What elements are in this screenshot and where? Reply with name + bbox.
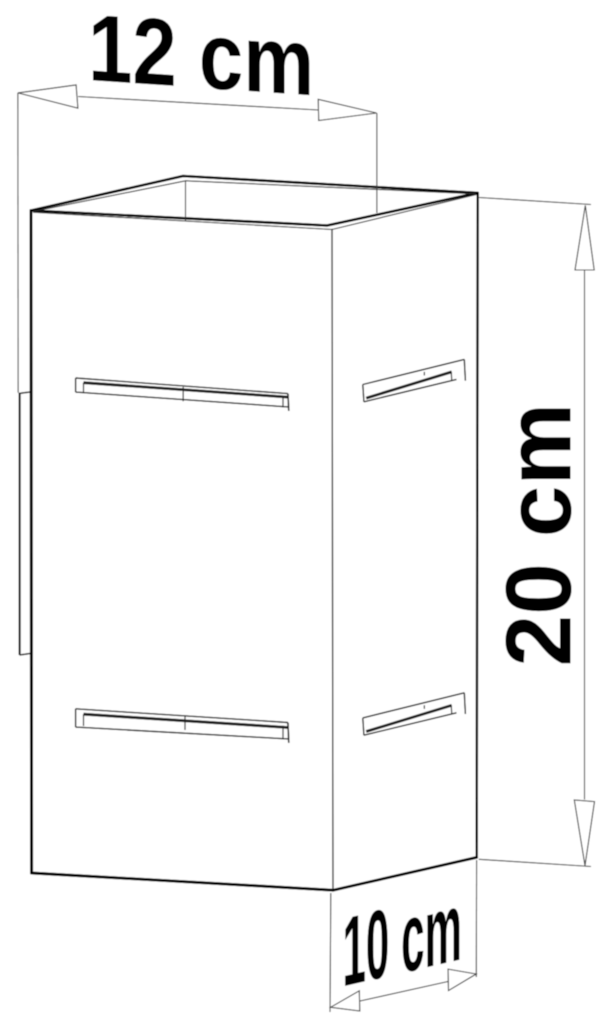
svg-text:12 cm: 12 cm <box>88 0 314 116</box>
svg-text:20 cm: 20 cm <box>487 403 591 667</box>
